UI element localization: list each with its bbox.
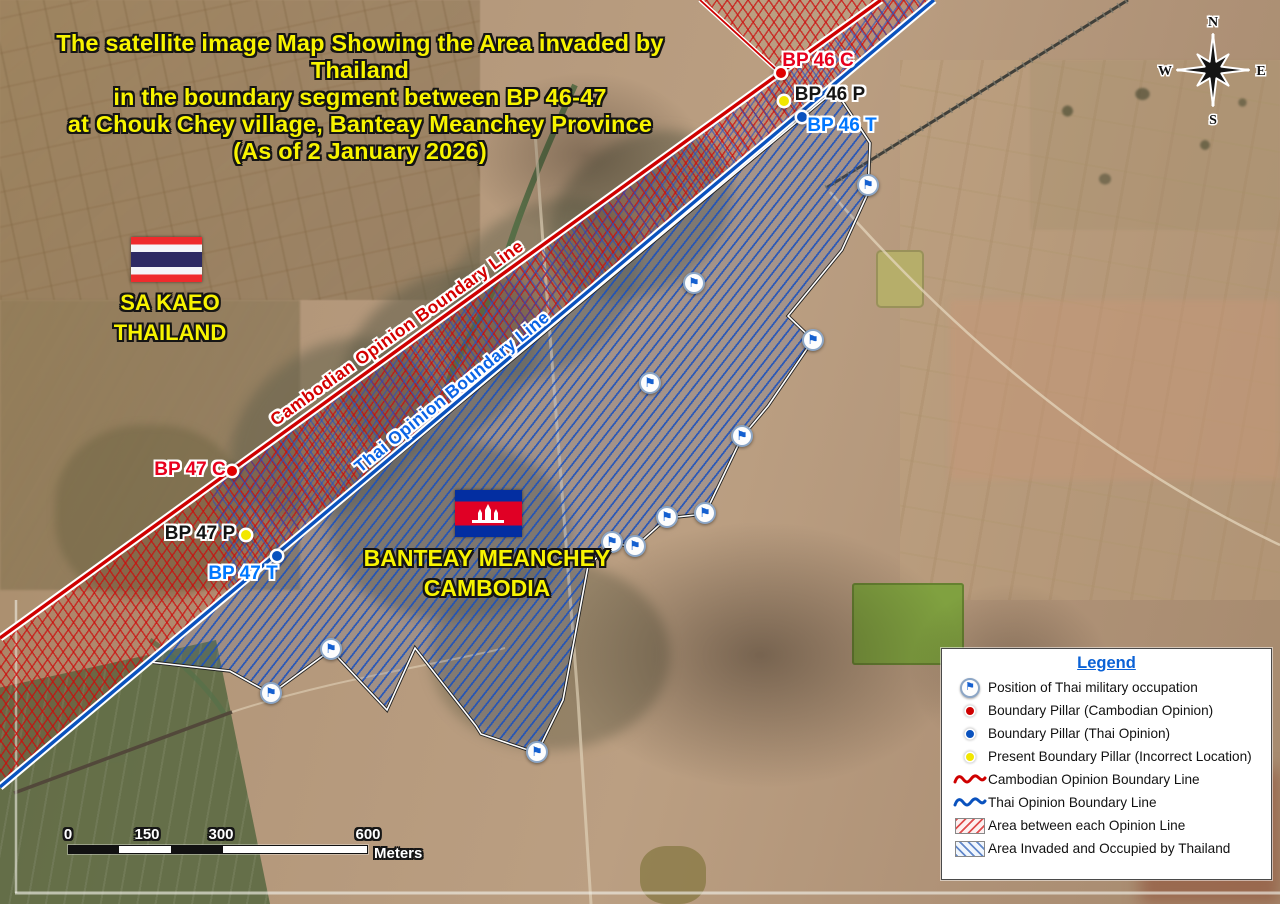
- region-label-line: BANTEAY MEANCHEY: [364, 543, 611, 573]
- compass-west-label: W: [1158, 64, 1172, 79]
- thailand-flag: [131, 237, 202, 282]
- region-label-line: THAILAND: [114, 318, 226, 348]
- legend-item-label: Area Invaded and Occupied by Thailand: [988, 841, 1230, 856]
- pillar-thai-icon: [952, 730, 988, 738]
- line-thai-icon: [952, 795, 988, 811]
- flag-icon: ⚑: [952, 678, 988, 698]
- legend-item-label: Present Boundary Pillar (Incorrect Locat…: [988, 749, 1252, 764]
- legend-item: ⚑Position of Thai military occupation: [952, 676, 1261, 699]
- title-line: (As of 2 January 2026): [10, 138, 710, 165]
- legend-item: Boundary Pillar (Cambodian Opinion): [952, 699, 1261, 722]
- scale-tick: 150: [134, 826, 159, 843]
- scale-unit-label: Meters: [374, 845, 422, 862]
- region-label-line: CAMBODIA: [364, 573, 611, 603]
- scale-tick: 600: [355, 826, 380, 843]
- legend-item: Area Invaded and Occupied by Thailand: [952, 837, 1261, 860]
- scale-tick: 300: [208, 826, 233, 843]
- compass-rose: N W E S: [1157, 8, 1269, 134]
- compass-star: [1177, 34, 1249, 106]
- legend-item-label: Position of Thai military occupation: [988, 680, 1198, 695]
- title-line: in the boundary segment between BP 46-47: [10, 84, 710, 111]
- line-cambodian-icon: [952, 772, 988, 788]
- legend-item: Thai Opinion Boundary Line: [952, 791, 1261, 814]
- pillar-present-icon: [952, 753, 988, 761]
- legend-item: Cambodian Opinion Boundary Line: [952, 768, 1261, 791]
- compass-north-label: N: [1208, 15, 1218, 30]
- cambodia-region-label: BANTEAY MEANCHEY CAMBODIA: [364, 543, 611, 603]
- thailand-region-label: SA KAEO THAILAND: [114, 288, 226, 348]
- compass-south-label: S: [1209, 113, 1217, 128]
- cambodia-flag: [455, 490, 522, 537]
- pillar-cambodian-icon: [952, 707, 988, 715]
- compass-east-label: E: [1256, 64, 1265, 79]
- legend-item: Boundary Pillar (Thai Opinion): [952, 722, 1261, 745]
- map-title: The satellite image Map Showing the Area…: [10, 30, 710, 165]
- angkor-wat-icon: [468, 501, 508, 525]
- legend-list: ⚑Position of Thai military occupationBou…: [952, 676, 1261, 860]
- legend-title: Legend: [952, 654, 1261, 673]
- legend-item-label: Cambodian Opinion Boundary Line: [988, 772, 1200, 787]
- scale-bar-segments: [68, 845, 368, 854]
- satellite-map: Cambodian Opinion Boundary Line Thai Opi…: [0, 0, 1280, 904]
- title-line: The satellite image Map Showing the Area…: [10, 30, 710, 84]
- scale-tick: 0: [64, 826, 72, 843]
- legend-box: Legend ⚑Position of Thai military occupa…: [941, 648, 1272, 880]
- legend-item-label: Boundary Pillar (Thai Opinion): [988, 726, 1170, 741]
- legend-item-label: Thai Opinion Boundary Line: [988, 795, 1157, 810]
- region-label-line: SA KAEO: [114, 288, 226, 318]
- legend-item-label: Boundary Pillar (Cambodian Opinion): [988, 703, 1213, 718]
- title-line: at Chouk Chey village, Banteay Meanchey …: [10, 111, 710, 138]
- legend-item: Area between each Opinion Line: [952, 814, 1261, 837]
- legend-item-label: Area between each Opinion Line: [988, 818, 1185, 833]
- area-between-icon: [952, 818, 988, 834]
- area-invaded-icon: [952, 841, 988, 857]
- legend-item: Present Boundary Pillar (Incorrect Locat…: [952, 745, 1261, 768]
